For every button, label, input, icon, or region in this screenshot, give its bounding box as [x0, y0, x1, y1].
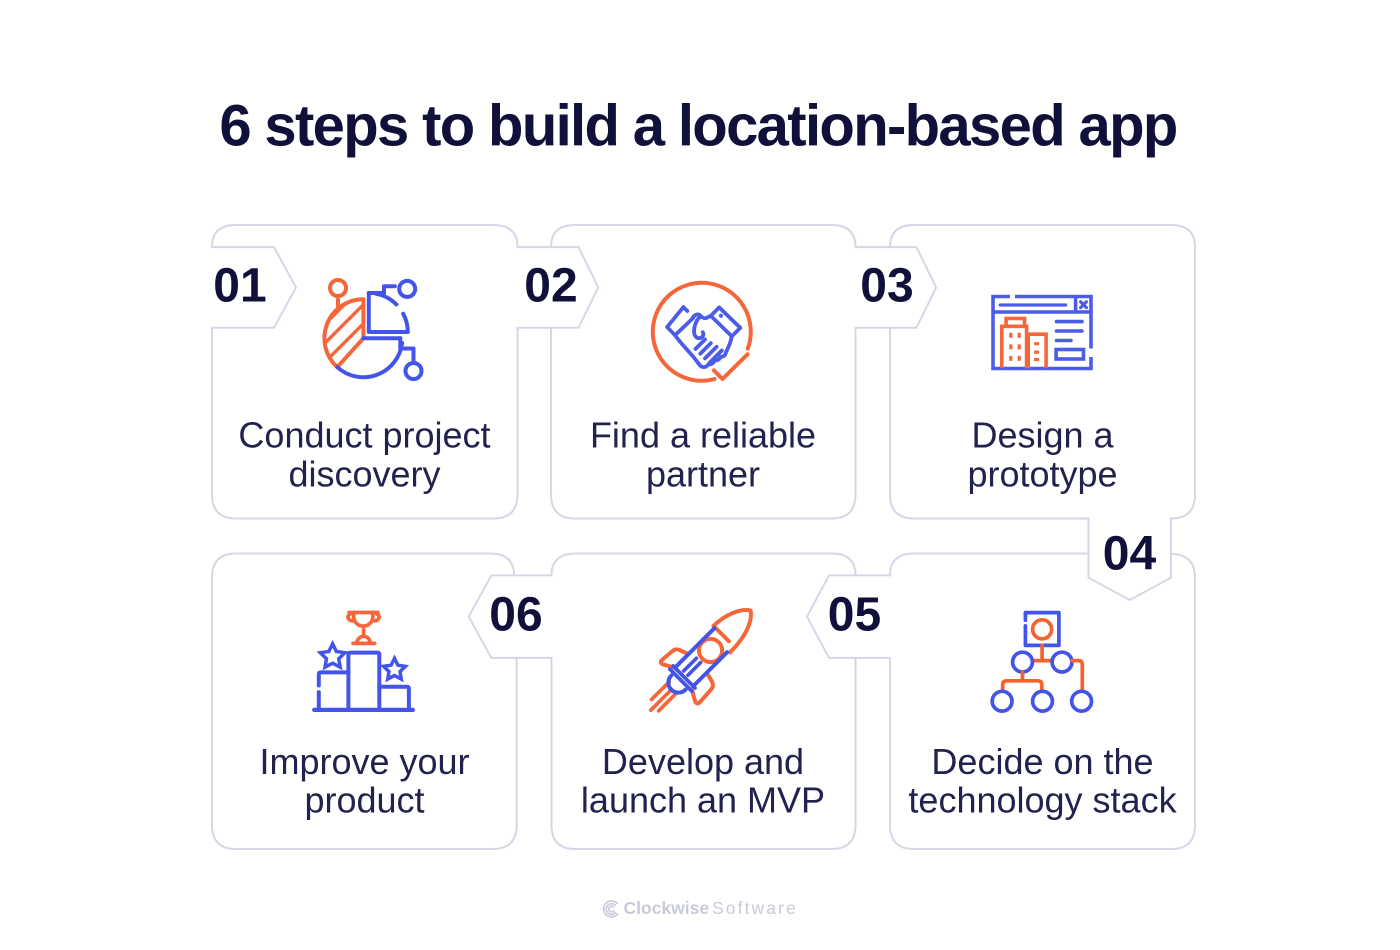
svg-text:Clockwise: Clockwise [624, 898, 710, 918]
svg-text:6 steps to build a location-ba: 6 steps to build a location-based app [219, 94, 1177, 159]
svg-text:Decide on the: Decide on the [931, 741, 1153, 782]
svg-text:discovery: discovery [288, 454, 440, 495]
svg-text:Improve your: Improve your [259, 741, 469, 782]
svg-text:Software: Software [712, 898, 798, 918]
svg-text:Design a: Design a [971, 415, 1114, 456]
svg-text:partner: partner [646, 454, 760, 495]
svg-text:Develop and: Develop and [602, 741, 804, 782]
svg-text:Find a reliable: Find a reliable [590, 415, 816, 456]
svg-text:Conduct project: Conduct project [238, 415, 490, 456]
svg-text:05: 05 [828, 589, 881, 642]
svg-text:launch an MVP: launch an MVP [581, 780, 825, 821]
svg-text:03: 03 [860, 260, 913, 313]
svg-text:04: 04 [1103, 528, 1157, 581]
svg-text:technology stack: technology stack [908, 780, 1177, 821]
svg-text:01: 01 [213, 260, 266, 313]
svg-text:06: 06 [489, 589, 542, 642]
svg-text:product: product [304, 780, 424, 821]
svg-text:02: 02 [524, 260, 577, 313]
svg-text:prototype: prototype [967, 454, 1117, 495]
